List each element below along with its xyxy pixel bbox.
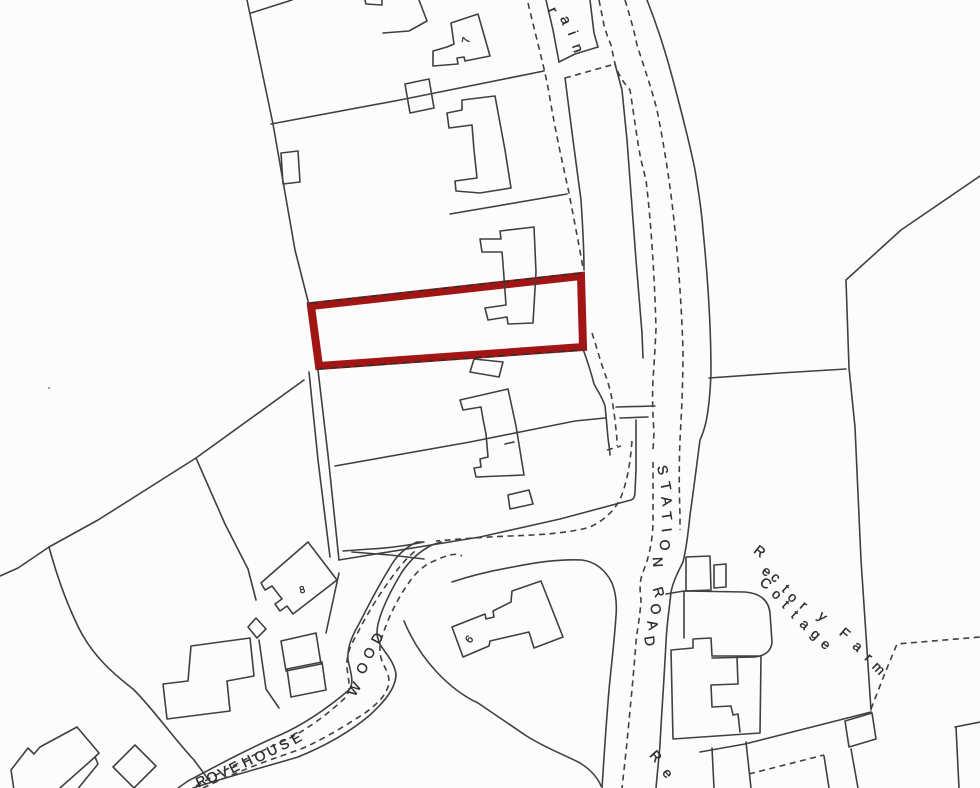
svg-text:I: I (659, 527, 675, 533)
svg-text:N: N (650, 557, 667, 568)
svg-text:8: 8 (298, 584, 307, 596)
svg-text:F: F (837, 624, 854, 642)
svg-text:O: O (359, 644, 378, 661)
svg-text:W: W (344, 678, 365, 698)
svg-text:a: a (797, 615, 814, 632)
svg-text:T: T (657, 480, 675, 492)
svg-text:R: R (751, 542, 769, 561)
svg-text:e: e (659, 765, 677, 781)
svg-text:i: i (564, 29, 580, 38)
svg-text:6: 6 (463, 634, 476, 646)
svg-text:t: t (788, 607, 802, 621)
svg-text:O: O (656, 539, 673, 552)
svg-text:A: A (644, 619, 662, 632)
svg-text:g: g (808, 625, 825, 642)
svg-text:e: e (818, 635, 834, 652)
svg-text:7: 7 (460, 36, 473, 44)
svg-text:r: r (544, 5, 561, 16)
svg-text:O: O (352, 659, 371, 677)
svg-text:A: A (658, 495, 675, 508)
svg-text:O: O (647, 602, 665, 616)
svg-text:T: T (658, 511, 675, 522)
svg-text:D: D (641, 635, 658, 648)
svg-text:R: R (647, 747, 666, 765)
svg-text:R: R (650, 585, 668, 599)
svg-text:r: r (862, 650, 877, 665)
svg-text:y: y (815, 608, 831, 625)
svg-text:a: a (556, 14, 574, 28)
svg-text:a: a (850, 637, 867, 654)
svg-text:o: o (769, 585, 786, 602)
svg-text:S: S (654, 464, 672, 477)
svg-text:m: m (869, 658, 889, 678)
